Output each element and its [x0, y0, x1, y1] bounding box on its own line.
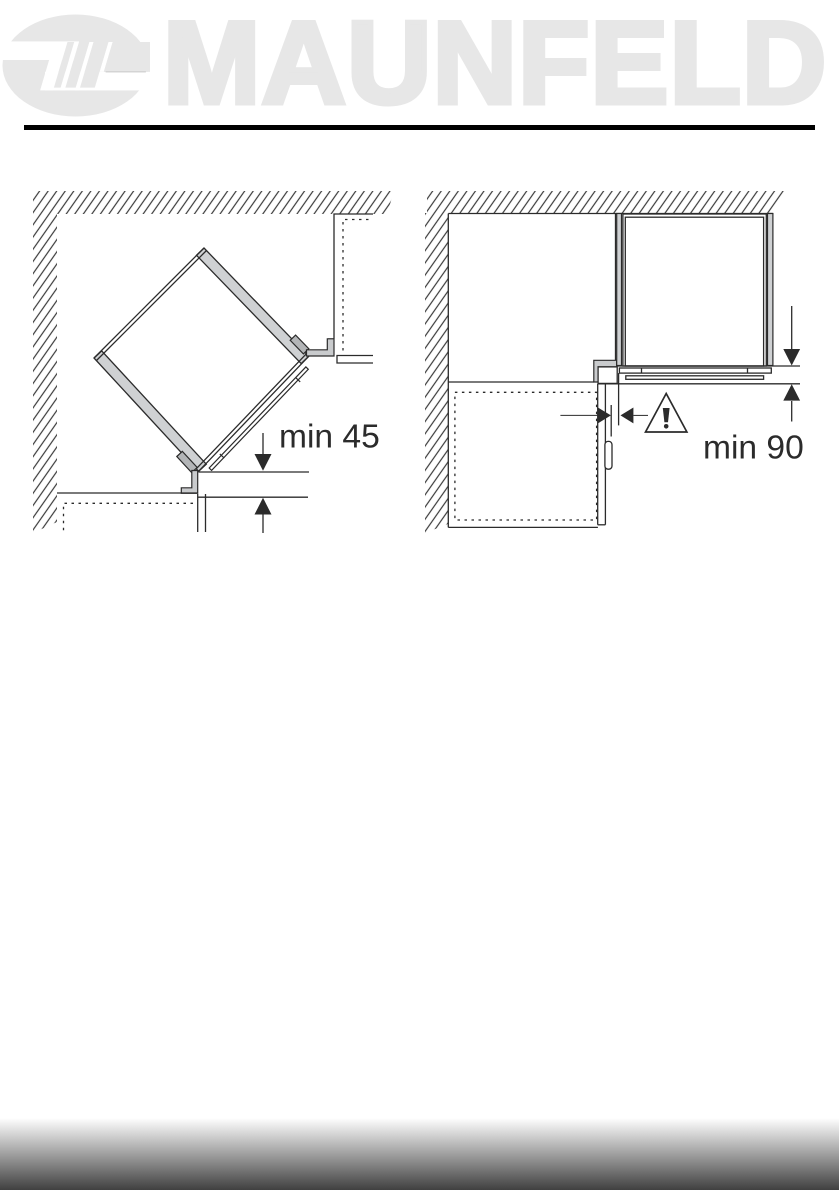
svg-text:min 90: min 90	[703, 430, 804, 467]
svg-text:min 45: min 45	[279, 419, 380, 456]
